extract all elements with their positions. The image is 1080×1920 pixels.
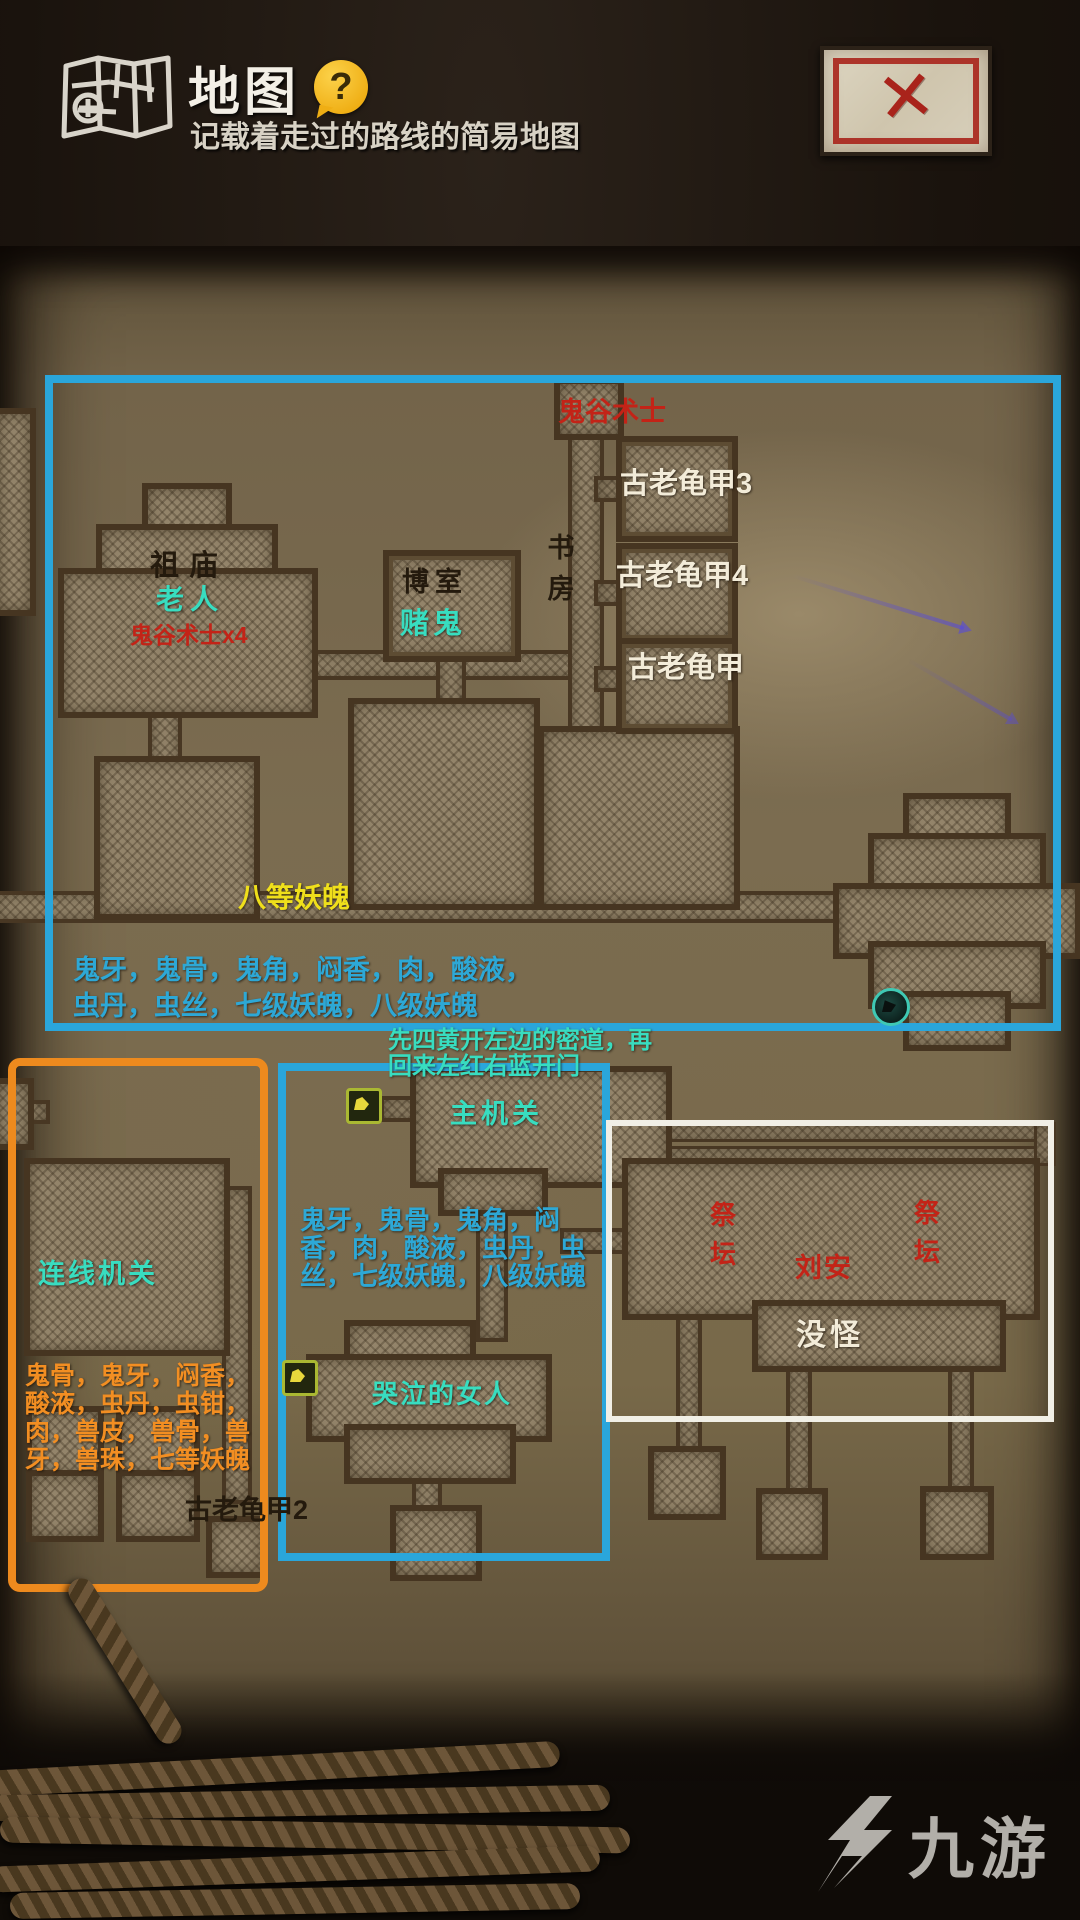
label-demon-soul-8: 八等妖魄 bbox=[238, 876, 350, 916]
map-room bbox=[920, 1486, 994, 1560]
portal-icon bbox=[872, 988, 910, 1026]
jiuyou-logo-icon bbox=[812, 1796, 898, 1892]
label-altar-right: 祭坛 bbox=[910, 1194, 944, 1272]
label-drops-top-2: 虫丹，虫丝，七级妖魄，八级妖魄 bbox=[73, 984, 478, 1023]
watermark-text: 九游 bbox=[908, 1796, 1052, 1892]
page-subtitle: 记载着走过的路线的简易地图 bbox=[190, 112, 580, 156]
label-turtle-shell-5: 古老龟甲 bbox=[628, 644, 744, 686]
label-drops-mid-3: 丝，七级妖魄，八级妖魄 bbox=[300, 1256, 586, 1293]
watermark: 九游 bbox=[812, 1796, 1052, 1892]
label-crying-woman: 哭泣的女人 bbox=[372, 1374, 512, 1411]
label-gambler: 赌鬼 bbox=[400, 600, 466, 642]
label-gamble-room: 博室 bbox=[402, 560, 468, 599]
label-npc: 刘安 bbox=[795, 1246, 853, 1285]
label-no-monsters: 没怪 bbox=[796, 1310, 864, 1354]
map-room bbox=[756, 1488, 828, 1560]
label-drops-left-4: 牙，兽珠，七等妖魄 bbox=[25, 1440, 250, 1476]
close-icon: ✕ bbox=[820, 48, 992, 147]
help-button[interactable]: ? bbox=[314, 60, 368, 114]
label-turtle-shell-3: 古老龟甲3 bbox=[620, 460, 752, 502]
close-button[interactable]: ✕ bbox=[820, 46, 992, 156]
map-room bbox=[0, 408, 36, 616]
label-old-man: 老人 bbox=[156, 578, 224, 618]
label-wire-mechanism: 连线机关 bbox=[38, 1252, 158, 1291]
question-icon: ? bbox=[329, 66, 352, 108]
label-main-mechanism: 主机关 bbox=[450, 1092, 543, 1131]
mechanism-icon bbox=[282, 1360, 318, 1396]
map-icon bbox=[58, 52, 176, 140]
map-screen: 地图 ? 记载着走过的路线的简易地图 ✕ bbox=[0, 0, 1080, 1920]
label-sorcerer: 鬼谷术士 bbox=[558, 390, 666, 429]
map-room bbox=[648, 1446, 726, 1520]
route-box-main bbox=[45, 375, 1061, 1031]
label-drops-top-1: 鬼牙，鬼骨，鬼角，闷香，肉，酸液， bbox=[73, 948, 532, 987]
label-hint-2: 回来左红右蓝开门 bbox=[388, 1046, 580, 1081]
mechanism-icon bbox=[346, 1088, 382, 1124]
label-altar-left: 祭坛 bbox=[706, 1196, 740, 1274]
label-turtle-shell-2: 古老龟甲2 bbox=[185, 1488, 308, 1527]
label-sorcerer-x4: 鬼谷术士x4 bbox=[130, 616, 248, 650]
label-study: 书房 bbox=[544, 528, 578, 609]
route-box-middle bbox=[278, 1063, 610, 1561]
label-turtle-shell-4: 古老龟甲4 bbox=[616, 552, 748, 594]
